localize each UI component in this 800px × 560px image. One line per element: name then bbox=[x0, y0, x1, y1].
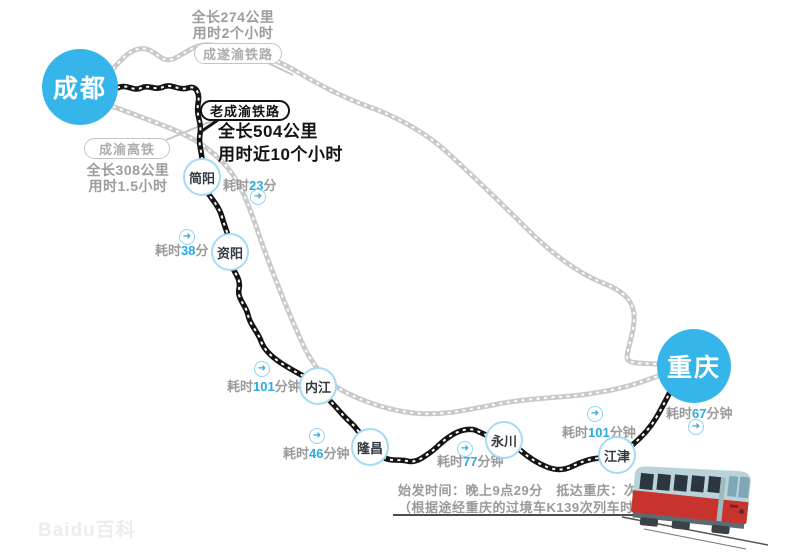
route-pill-chengsuyu: 成遂渝铁路 bbox=[194, 43, 282, 64]
hsr-route-stats: 全长308公里 用时1.5小时 bbox=[70, 162, 186, 194]
laochengyu-route-stats: 全长504公里 用时近10个小时 bbox=[218, 120, 343, 166]
railway-map: 成都 重庆 简阳 资阳 内江 隆昌 永川 江津 全长274公里 用时2个小时 成… bbox=[0, 0, 800, 555]
station-label: 简阳 bbox=[189, 168, 215, 187]
train-illustration bbox=[618, 455, 778, 560]
station-node-ziyang: 资阳 bbox=[211, 233, 249, 271]
transfer-arrow-icon: ➜ bbox=[254, 361, 270, 377]
station-node-longchang: 隆昌 bbox=[351, 428, 389, 466]
station-label: 资阳 bbox=[217, 243, 243, 262]
transfer-arrow-icon: ➜ bbox=[457, 441, 473, 457]
transfer-arrow-icon: ➜ bbox=[309, 428, 325, 444]
station-label: 隆昌 bbox=[357, 438, 383, 457]
duration-value: 101 bbox=[253, 379, 275, 394]
duration-suffix: 分 bbox=[263, 178, 276, 193]
duration-suffix: 分钟 bbox=[275, 379, 301, 394]
station-node-jianyang: 简阳 bbox=[183, 158, 221, 196]
duration-prefix: 耗时 bbox=[223, 178, 249, 193]
duration-prefix: 耗时 bbox=[227, 379, 253, 394]
transfer-arrow-icon: ➜ bbox=[587, 406, 603, 422]
arrow-glyph: ➜ bbox=[313, 431, 321, 441]
duration-to-longchang: 耗时46分钟 bbox=[283, 443, 350, 462]
route-name: 成遂渝铁路 bbox=[203, 44, 273, 63]
duration-prefix: 耗时 bbox=[155, 243, 181, 258]
arrow-glyph: ➜ bbox=[183, 232, 191, 242]
duration-prefix: 耗时 bbox=[666, 406, 692, 421]
route-pill-laochengyu: 老成渝铁路 bbox=[200, 100, 290, 121]
city-label-chengdu: 成都 bbox=[53, 69, 107, 105]
duration-value: 46 bbox=[309, 446, 323, 461]
duration-prefix: 耗时 bbox=[283, 446, 309, 461]
arrow-glyph: ➜ bbox=[461, 444, 469, 454]
duration-value: 38 bbox=[181, 243, 195, 258]
duration-prefix: 耗时 bbox=[437, 454, 463, 469]
stat-length: 全长504公里 bbox=[218, 120, 343, 143]
chengsuyu-route-stats: 全长274公里 用时2个小时 bbox=[168, 9, 298, 41]
stat-length: 全长274公里 bbox=[168, 9, 298, 25]
transfer-arrow-icon: ➜ bbox=[250, 189, 266, 205]
route-name: 老成渝铁路 bbox=[210, 101, 280, 120]
duration-suffix: 分钟 bbox=[706, 406, 732, 421]
arrow-glyph: ➜ bbox=[591, 409, 599, 419]
duration-jianyang-ziyang: 耗时23分 bbox=[223, 175, 277, 194]
stat-time: 用时2个小时 bbox=[168, 25, 298, 41]
station-node-neijiang: 内江 bbox=[299, 367, 337, 405]
stat-length: 全长308公里 bbox=[70, 162, 186, 178]
duration-suffix: 分 bbox=[195, 243, 208, 258]
station-node-yongchuan: 永川 bbox=[485, 421, 523, 459]
city-node-chengdu: 成都 bbox=[42, 49, 118, 125]
duration-to-neijiang: 耗时101分钟 bbox=[227, 376, 301, 395]
stat-time: 用时1.5小时 bbox=[70, 178, 186, 194]
city-node-chongqing: 重庆 bbox=[657, 329, 731, 403]
arrow-glyph: ➜ bbox=[258, 364, 266, 374]
duration-suffix: 分钟 bbox=[323, 446, 349, 461]
baidu-baike-watermark: Baidu百科 bbox=[38, 515, 136, 542]
route-pill-hsr: 成渝高铁 bbox=[84, 138, 170, 159]
arrow-glyph: ➜ bbox=[254, 192, 262, 202]
stat-time: 用时近10个小时 bbox=[218, 143, 343, 166]
station-label: 永川 bbox=[491, 431, 517, 450]
city-label-chongqing: 重庆 bbox=[667, 348, 721, 384]
station-label: 内江 bbox=[305, 377, 331, 396]
arrow-glyph: ➜ bbox=[692, 422, 700, 432]
route-name: 成渝高铁 bbox=[99, 139, 155, 158]
train-icon bbox=[618, 455, 778, 555]
duration-prefix: 耗时 bbox=[562, 425, 588, 440]
transfer-arrow-icon: ➜ bbox=[179, 229, 195, 245]
transfer-arrow-icon: ➜ bbox=[688, 419, 704, 435]
